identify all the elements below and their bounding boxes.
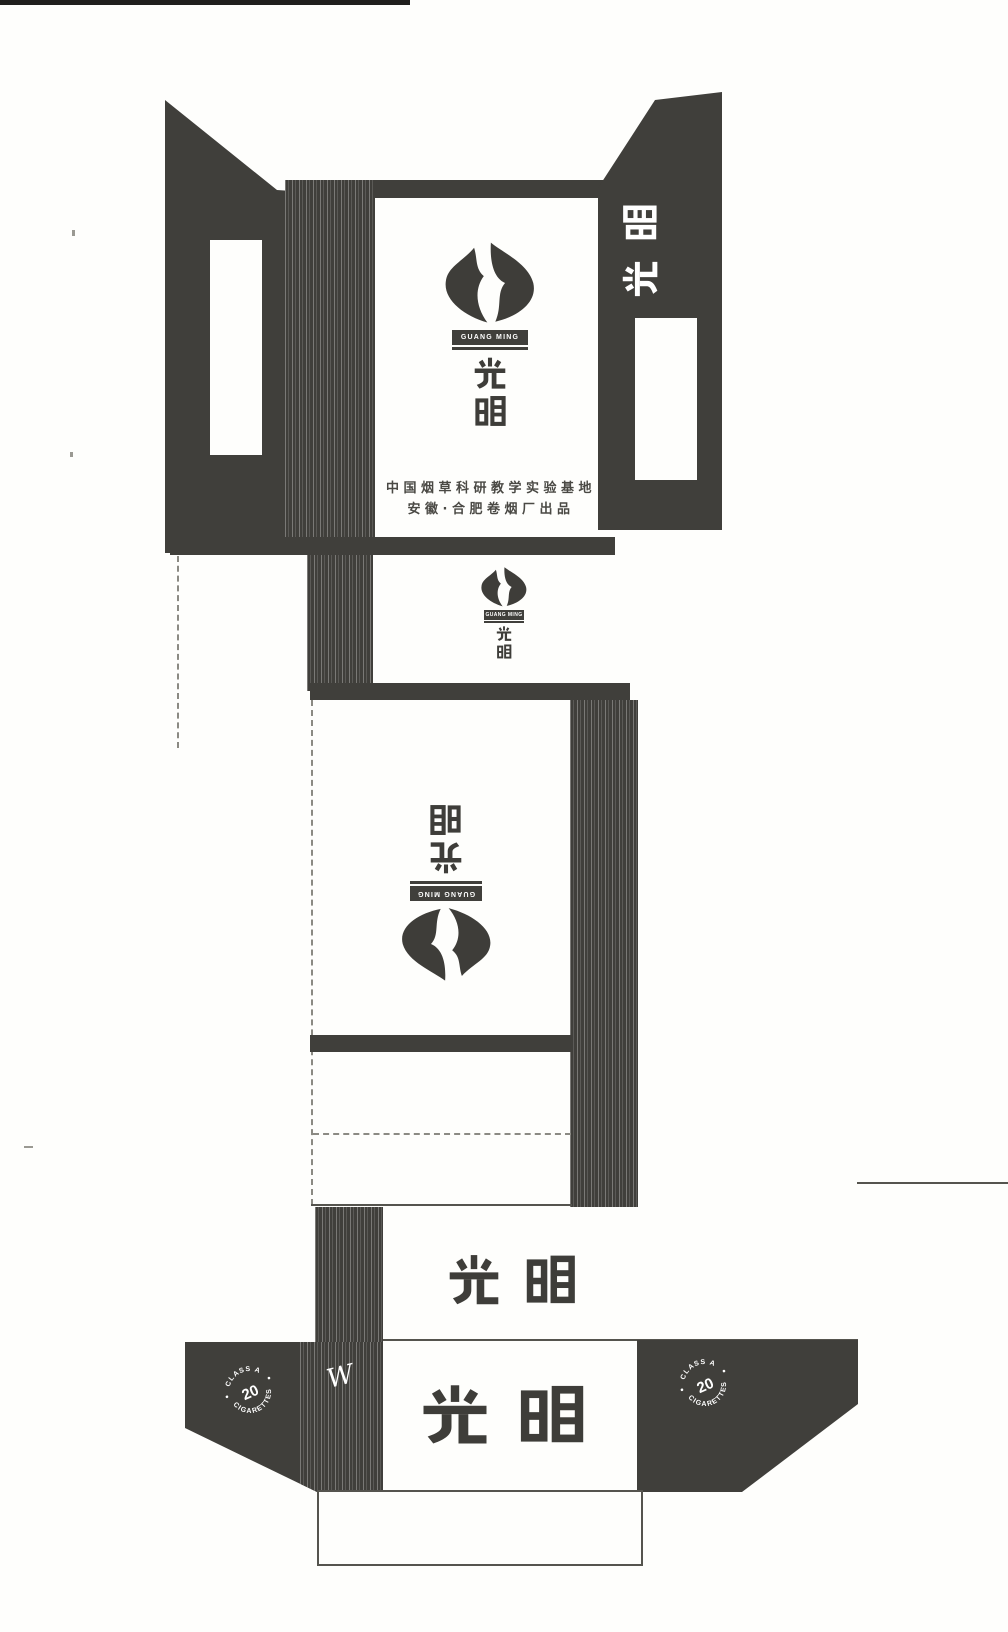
spine-strip-continuation [307, 555, 373, 691]
pinyin-banner: GUANG MING [452, 330, 528, 345]
brand-char-guang-inverted [429, 840, 463, 874]
brand-char-ming-side [523, 1254, 577, 1308]
bottom-panel-brand [420, 1384, 586, 1448]
back-panel-bottom-band [310, 1035, 572, 1052]
scan-edge-line [0, 0, 410, 5]
bottom-left-flap: CLASS A CIGARETTES 20 W [185, 1342, 383, 1492]
margin-rule-line [857, 1182, 1008, 1184]
pinyin-banner-inverted: GUANG MING [410, 886, 482, 901]
brand-char-guang-side [447, 1254, 501, 1308]
pack-dieline-scan: GUANG MING 中国烟草科研教学实验基地 安徽·合肥卷烟厂出品 GUANG… [0, 0, 1008, 1632]
banner-underline-inverted [410, 881, 482, 884]
right-flap-brand-vertical [622, 204, 660, 298]
fold-line-left [177, 556, 179, 748]
class-a-stamp-right: CLASS A CIGARETTES 20 [663, 1343, 747, 1427]
side-panel-brand [447, 1254, 577, 1308]
glue-panel-dashed-line [313, 1133, 571, 1135]
right-striped-band [570, 700, 638, 1207]
maker-line1: 中国烟草科研教学实验基地 [378, 478, 604, 499]
svg-text:CLASS A: CLASS A [221, 1360, 264, 1390]
brand-char-ming-small [496, 644, 512, 660]
side-striped-band [315, 1207, 383, 1343]
scan-speck [72, 230, 75, 236]
stamp-count: 20 [694, 1375, 716, 1397]
right-flap-window-cutout [635, 318, 697, 480]
stamp-arc-top: CLASS A [221, 1360, 264, 1390]
flame-logo-icon [437, 240, 543, 326]
pinyin-banner-small: GUANG MING [484, 610, 524, 620]
banner-underline-small [484, 621, 524, 623]
maker-line2: 安徽·合肥卷烟厂出品 [378, 499, 604, 520]
lid-bottom-band [170, 537, 615, 555]
brand-char-guang-small [496, 626, 512, 642]
class-a-stamp-left: CLASS A CIGARETTES 20 [208, 1350, 292, 1434]
spine-striped-panel [285, 180, 375, 555]
lid-right-flap [598, 92, 722, 530]
fold-line-back-panel [311, 700, 313, 1205]
svg-text:CLASS A: CLASS A [676, 1353, 719, 1383]
stamp-arc-top: CLASS A [676, 1353, 719, 1383]
brand-char-ming-inverted [429, 802, 463, 836]
left-flap-window-cutout [210, 240, 262, 455]
stamp-count: 20 [239, 1382, 261, 1404]
banner-underline [452, 347, 528, 350]
front-panel-logo: GUANG MING [434, 240, 546, 429]
brand-char-ming-bottom [516, 1384, 586, 1448]
script-monogram: W [324, 1361, 356, 1393]
glue-panel-bottom-line [311, 1204, 572, 1206]
brand-char-ming [473, 395, 507, 429]
brand-char-guang-bottom [420, 1384, 490, 1448]
bottom-right-flap: CLASS A CIGARETTES 20 [637, 1340, 858, 1492]
flame-logo-icon-small [477, 566, 531, 608]
brand-char-guang [473, 357, 507, 391]
back-panel-logo-inverted: GUANG MING [390, 802, 502, 983]
bottom-tuck-flap [317, 1490, 643, 1566]
brand-char-ming-rotated [622, 204, 660, 242]
flame-logo-icon-inverted [393, 905, 499, 983]
maker-text: 中国烟草科研教学实验基地 安徽·合肥卷烟厂出品 [378, 478, 604, 520]
brand-char-guang-rotated [622, 260, 660, 298]
scan-speck [24, 1146, 33, 1148]
scan-speck [70, 452, 73, 457]
tuck-flap-mini-logo: GUANG MING [476, 566, 532, 660]
back-panel-top-band [310, 683, 630, 700]
